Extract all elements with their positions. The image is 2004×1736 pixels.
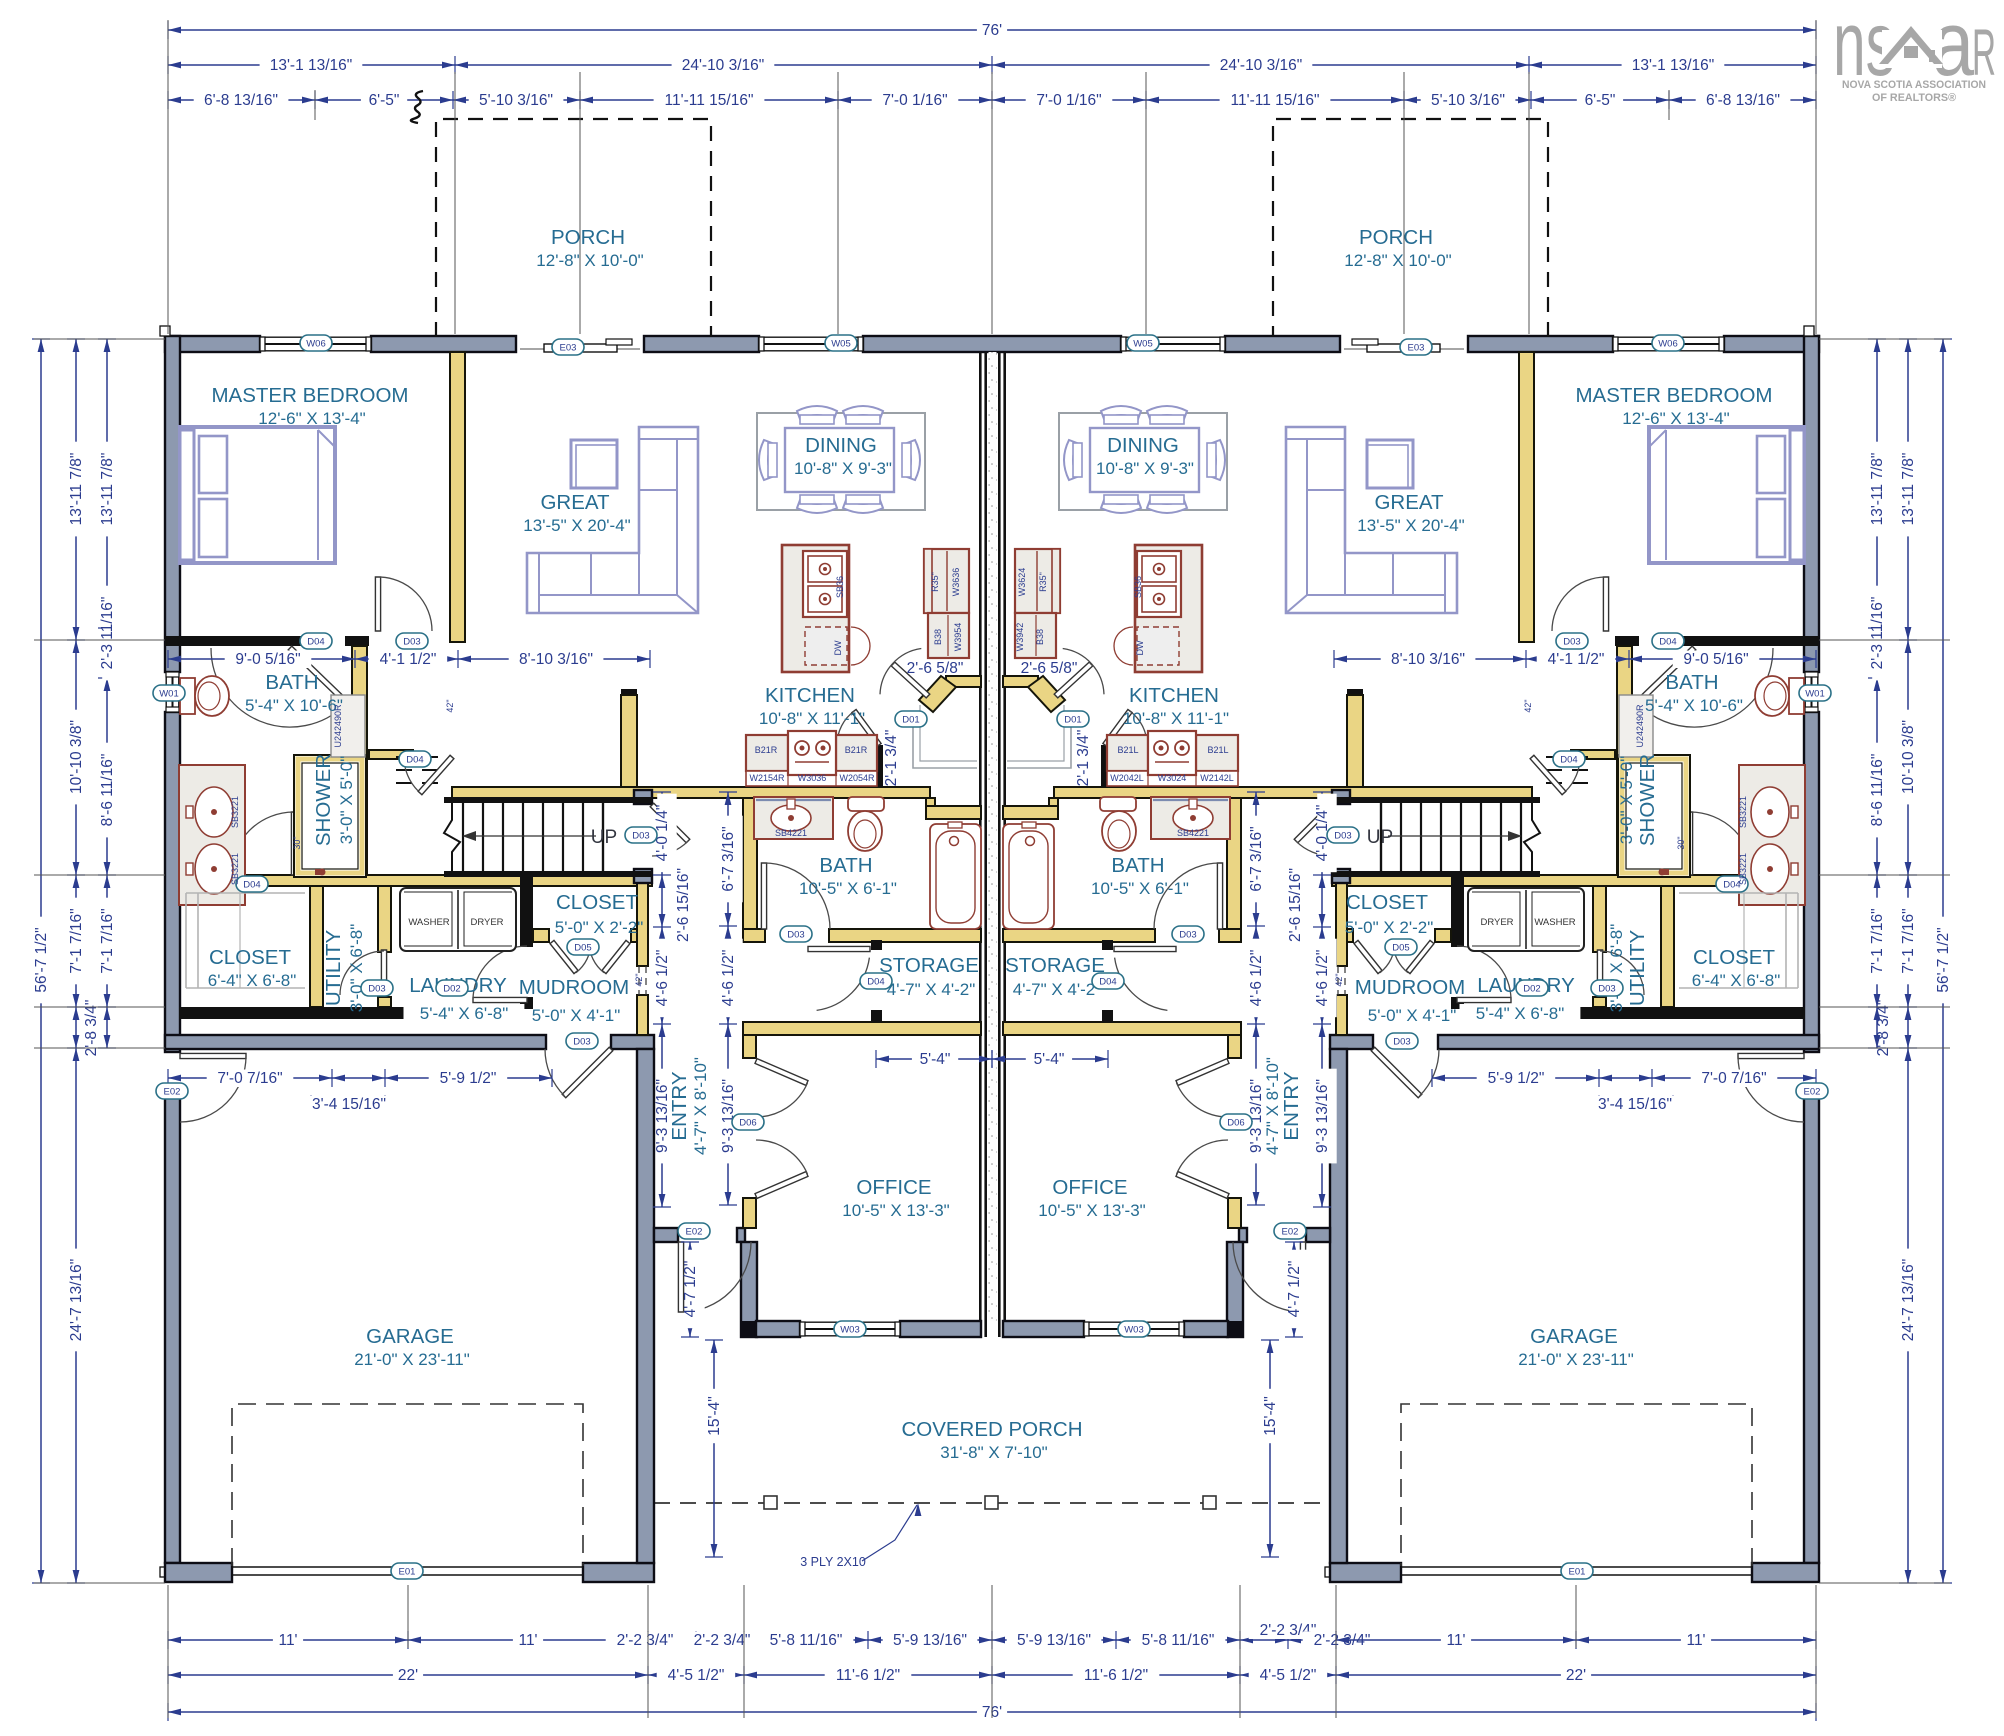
svg-text:W03: W03: [840, 1325, 860, 1336]
svg-text:4'-7" X 8'-10": 4'-7" X 8'-10": [691, 1057, 710, 1155]
svg-text:6'-8 13/16": 6'-8 13/16": [204, 92, 278, 109]
svg-text:SB3221: SB3221: [230, 796, 240, 828]
svg-text:56'-7 1/2": 56'-7 1/2": [1935, 927, 1952, 992]
svg-text:4'-7" X 4'-2": 4'-7" X 4'-2": [887, 980, 976, 999]
svg-text:3 PLY 2X10: 3 PLY 2X10: [800, 1555, 866, 1569]
svg-text:D06: D06: [739, 1118, 756, 1129]
svg-text:D03: D03: [1563, 637, 1580, 648]
svg-text:6'-4" X 6'-8": 6'-4" X 6'-8": [1692, 971, 1781, 990]
svg-text:10'-5" X 6'-1": 10'-5" X 6'-1": [799, 879, 897, 898]
svg-text:12'-8" X 10'-0": 12'-8" X 10'-0": [536, 251, 643, 270]
svg-text:7'-1 7/16": 7'-1 7/16": [1869, 908, 1886, 973]
svg-text:11'-6 1/2": 11'-6 1/2": [1084, 1667, 1148, 1684]
svg-text:15'-4": 15'-4": [706, 1396, 723, 1435]
svg-text:GREAT: GREAT: [540, 491, 610, 514]
svg-text:11'-6 1/2": 11'-6 1/2": [836, 1667, 900, 1684]
svg-text:12'-6" X 13'-4": 12'-6" X 13'-4": [258, 409, 365, 428]
svg-text:W03: W03: [1124, 1325, 1144, 1336]
svg-text:D03: D03: [1598, 984, 1615, 995]
svg-text:DINING: DINING: [1107, 434, 1179, 457]
svg-text:B38: B38: [1035, 629, 1045, 645]
svg-text:OFFICE: OFFICE: [1052, 1176, 1127, 1199]
svg-text:B38: B38: [933, 629, 943, 645]
svg-text:4'-7" X 4'-2": 4'-7" X 4'-2": [1013, 980, 1102, 999]
svg-text:13'-5" X 20'-4": 13'-5" X 20'-4": [523, 516, 630, 535]
svg-text:D01: D01: [1064, 715, 1081, 726]
svg-text:2'-6 15/16": 2'-6 15/16": [1287, 868, 1304, 942]
svg-text:3'-0" X 6'-8": 3'-0" X 6'-8": [347, 924, 366, 1013]
svg-text:4'-6 1/2": 4'-6 1/2": [654, 950, 671, 1007]
svg-text:5'-0" X 2'-2": 5'-0" X 2'-2": [1345, 918, 1434, 937]
svg-text:E01: E01: [399, 1567, 416, 1578]
svg-text:D03: D03: [1334, 831, 1351, 842]
svg-text:SHOWER: SHOWER: [1636, 754, 1659, 846]
svg-text:2'-6 15/16": 2'-6 15/16": [675, 868, 692, 942]
svg-text:R35": R35": [1038, 572, 1048, 592]
svg-text:3'-0" X 5'-0": 3'-0" X 5'-0": [1617, 756, 1636, 845]
svg-text:SB36: SB36: [1133, 576, 1143, 598]
svg-text:CLOSET: CLOSET: [556, 891, 638, 914]
svg-text:5'-0" X 4'-1": 5'-0" X 4'-1": [532, 1006, 621, 1025]
svg-text:56'-7 1/2": 56'-7 1/2": [33, 927, 50, 992]
svg-text:W05: W05: [831, 339, 851, 350]
svg-text:MASTER BEDROOM: MASTER BEDROOM: [1575, 384, 1772, 407]
svg-text:BATH: BATH: [265, 671, 318, 694]
svg-text:SB3221: SB3221: [1738, 853, 1748, 885]
svg-text:W05: W05: [1133, 339, 1153, 350]
svg-text:21'-0" X 23'-11": 21'-0" X 23'-11": [354, 1350, 470, 1369]
svg-text:2'-1 3/4": 2'-1 3/4": [1075, 730, 1092, 787]
svg-text:OF REALTORS®: OF REALTORS®: [1872, 92, 1956, 104]
svg-text:10'-5" X 6'-1": 10'-5" X 6'-1": [1091, 879, 1189, 898]
svg-text:6'-7 3/16": 6'-7 3/16": [1248, 826, 1265, 891]
svg-text:W3636: W3636: [951, 568, 961, 597]
svg-text:OFFICE: OFFICE: [856, 1176, 931, 1199]
svg-text:6'-8 13/16": 6'-8 13/16": [1706, 92, 1780, 109]
svg-text:GARAGE: GARAGE: [1530, 1325, 1618, 1348]
svg-text:6'-5": 6'-5": [369, 92, 400, 109]
svg-text:W3036: W3036: [798, 773, 827, 783]
svg-text:30": 30": [1676, 836, 1686, 849]
svg-text:KITCHEN: KITCHEN: [765, 684, 855, 707]
svg-text:UP: UP: [1367, 827, 1393, 848]
svg-text:9'-0 5/16": 9'-0 5/16": [1683, 651, 1748, 668]
svg-text:21'-0" X 23'-11": 21'-0" X 23'-11": [1518, 1350, 1634, 1369]
svg-text:11': 11': [518, 1632, 537, 1649]
svg-text:13'-11 7/8": 13'-11 7/8": [99, 453, 116, 526]
svg-text:11': 11': [278, 1632, 297, 1649]
svg-text:W3024: W3024: [1158, 773, 1187, 783]
svg-text:D03: D03: [368, 984, 385, 995]
svg-text:5'-9 1/2": 5'-9 1/2": [1488, 1070, 1545, 1087]
svg-text:10'-8" X 11'-1": 10'-8" X 11'-1": [1123, 709, 1229, 728]
svg-text:CLOSET: CLOSET: [1693, 946, 1775, 969]
svg-text:B21L: B21L: [1117, 745, 1138, 755]
svg-text:D04: D04: [1659, 637, 1676, 648]
svg-text:11': 11': [1446, 1632, 1465, 1649]
svg-text:R35": R35": [930, 572, 940, 592]
svg-text:4'-1 1/2": 4'-1 1/2": [1548, 651, 1605, 668]
svg-text:5'-10 3/16": 5'-10 3/16": [1431, 92, 1505, 109]
svg-text:10'-5" X 13'-3": 10'-5" X 13'-3": [842, 1201, 949, 1220]
svg-text:2'-3 11/16": 2'-3 11/16": [1869, 597, 1886, 670]
svg-text:42": 42": [634, 973, 644, 986]
svg-text:E02: E02: [1282, 1227, 1299, 1238]
svg-text:11'-11 15/16": 11'-11 15/16": [665, 92, 754, 109]
svg-text:W2154R: W2154R: [749, 773, 785, 783]
svg-text:BATH: BATH: [1111, 854, 1164, 877]
svg-text:30": 30": [292, 836, 302, 849]
svg-text:BATH: BATH: [819, 854, 872, 877]
svg-text:SB3221: SB3221: [230, 853, 240, 885]
svg-text:10'-5" X 13'-3": 10'-5" X 13'-3": [1038, 1201, 1145, 1220]
svg-text:24'-7 13/16": 24'-7 13/16": [1900, 1259, 1917, 1342]
svg-text:5'-4" X 10'-6": 5'-4" X 10'-6": [1645, 696, 1743, 715]
svg-text:5'-0" X 2'-2": 5'-0" X 2'-2": [555, 918, 644, 937]
svg-text:CLOSET: CLOSET: [209, 946, 291, 969]
svg-text:MUDROOM: MUDROOM: [519, 976, 629, 999]
svg-text:13'-11 7/8": 13'-11 7/8": [1869, 453, 1886, 526]
svg-text:4'-1 1/2": 4'-1 1/2": [380, 651, 437, 668]
svg-text:D03: D03: [1393, 1037, 1410, 1048]
svg-text:W3954: W3954: [953, 623, 963, 652]
svg-text:5'-0" X 4'-1": 5'-0" X 4'-1": [1368, 1006, 1457, 1025]
svg-text:SB3221: SB3221: [1738, 796, 1748, 828]
svg-text:W2142L: W2142L: [1200, 773, 1234, 783]
svg-text:NOVA SCOTIA ASSOCIATION: NOVA SCOTIA ASSOCIATION: [1842, 79, 1986, 91]
svg-text:E02: E02: [1804, 1087, 1821, 1098]
svg-text:UTILITY: UTILITY: [1626, 930, 1649, 1007]
svg-text:2'-3 11/16": 2'-3 11/16": [99, 597, 116, 670]
svg-text:D04: D04: [1560, 755, 1577, 766]
svg-text:DW: DW: [833, 640, 843, 655]
svg-text:4'-5 1/2": 4'-5 1/2": [1260, 1667, 1317, 1684]
svg-text:SB4221: SB4221: [775, 828, 807, 838]
svg-text:E03: E03: [1408, 343, 1425, 354]
svg-text:DINING: DINING: [805, 434, 877, 457]
svg-text:D02: D02: [1523, 984, 1540, 995]
svg-text:7'-1 7/16": 7'-1 7/16": [68, 908, 85, 973]
svg-text:15'-4": 15'-4": [1262, 1396, 1279, 1435]
svg-text:STORAGE: STORAGE: [879, 954, 979, 977]
svg-text:B21R: B21R: [755, 745, 778, 755]
svg-text:MUDROOM: MUDROOM: [1355, 976, 1465, 999]
svg-text:D02: D02: [443, 984, 460, 995]
svg-text:3'-4 15/16": 3'-4 15/16": [1598, 1096, 1672, 1113]
svg-text:E02: E02: [686, 1227, 703, 1238]
svg-text:UTILITY: UTILITY: [322, 930, 345, 1007]
svg-text:4'-7" X 8'-10": 4'-7" X 8'-10": [1263, 1057, 1282, 1155]
svg-text:7'-1 7/16": 7'-1 7/16": [99, 908, 116, 973]
svg-text:12'-8" X 10'-0": 12'-8" X 10'-0": [1344, 251, 1451, 270]
svg-text:U242490R: U242490R: [333, 704, 343, 748]
svg-text:W3624: W3624: [1017, 568, 1027, 597]
svg-text:11'-11 15/16": 11'-11 15/16": [1231, 92, 1320, 109]
svg-text:10'-8" X 9'-3": 10'-8" X 9'-3": [1096, 459, 1194, 478]
svg-text:D04: D04: [307, 637, 324, 648]
svg-text:4'-6 1/2": 4'-6 1/2": [1248, 950, 1265, 1007]
svg-text:7'-1 7/16": 7'-1 7/16": [1900, 908, 1917, 973]
svg-text:7'-0 7/16": 7'-0 7/16": [1701, 1070, 1766, 1087]
svg-text:5'-9 1/2": 5'-9 1/2": [440, 1070, 497, 1087]
svg-text:42": 42": [1523, 699, 1533, 712]
svg-text:5'-9 13/16": 5'-9 13/16": [1017, 1632, 1091, 1649]
svg-text:DW: DW: [1135, 640, 1145, 655]
svg-text:5'-4": 5'-4": [920, 1051, 951, 1068]
svg-text:7'-0 1/16": 7'-0 1/16": [1036, 92, 1101, 109]
svg-text:D03: D03: [573, 1037, 590, 1048]
svg-text:10'-10 3/8": 10'-10 3/8": [68, 720, 85, 794]
svg-text:6'-4" X 6'-8": 6'-4" X 6'-8": [208, 971, 297, 990]
svg-text:R: R: [1972, 15, 1996, 89]
svg-text:31'-8" X 7'-10": 31'-8" X 7'-10": [940, 1443, 1047, 1462]
svg-text:W2054R: W2054R: [839, 773, 875, 783]
svg-text:42": 42": [445, 699, 455, 712]
svg-text:ENTRY: ENTRY: [668, 1071, 691, 1140]
svg-text:U242490R: U242490R: [1635, 704, 1645, 748]
svg-text:D06: D06: [1227, 1118, 1244, 1129]
svg-text:WASHER: WASHER: [1534, 917, 1575, 928]
svg-text:B21R: B21R: [845, 745, 868, 755]
svg-text:ENTRY: ENTRY: [1280, 1071, 1303, 1140]
svg-text:13'-5" X 20'-4": 13'-5" X 20'-4": [1357, 516, 1464, 535]
svg-text:22': 22': [1566, 1667, 1586, 1684]
svg-text:9'-3 13/16": 9'-3 13/16": [1314, 1079, 1331, 1153]
svg-text:10'-10 3/8": 10'-10 3/8": [1900, 720, 1917, 794]
svg-text:2'-6 5/8": 2'-6 5/8": [1021, 660, 1078, 677]
svg-text:GREAT: GREAT: [1374, 491, 1444, 514]
svg-text:W06: W06: [306, 339, 326, 350]
svg-text:7'-0 1/16": 7'-0 1/16": [882, 92, 947, 109]
svg-text:D04: D04: [867, 977, 884, 988]
svg-text:76': 76': [982, 22, 1002, 39]
svg-text:11': 11': [1686, 1632, 1705, 1649]
svg-text:24'-7 13/16": 24'-7 13/16": [68, 1259, 85, 1342]
svg-text:D04: D04: [406, 755, 423, 766]
svg-text:PORCH: PORCH: [1359, 226, 1433, 249]
svg-text:SB36: SB36: [835, 576, 845, 598]
svg-text:13'-1 13/16": 13'-1 13/16": [1632, 57, 1715, 74]
svg-text:DRYER: DRYER: [1480, 917, 1513, 928]
svg-text:W3942: W3942: [1015, 623, 1025, 652]
svg-text:W06: W06: [1658, 339, 1678, 350]
svg-text:SB4221: SB4221: [1177, 828, 1209, 838]
svg-text:E02: E02: [164, 1087, 181, 1098]
svg-text:13'-11 7/8": 13'-11 7/8": [1900, 453, 1917, 526]
svg-text:BATH: BATH: [1665, 671, 1718, 694]
svg-text:5'-4" X 6'-8": 5'-4" X 6'-8": [1476, 1004, 1565, 1023]
svg-text:D03: D03: [632, 831, 649, 842]
svg-text:7'-0 7/16": 7'-0 7/16": [217, 1070, 282, 1087]
svg-text:5'-4": 5'-4": [1034, 1051, 1065, 1068]
svg-text:2'-1 3/4": 2'-1 3/4": [883, 730, 900, 787]
svg-text:2'-6 5/8": 2'-6 5/8": [907, 660, 964, 677]
svg-text:UP: UP: [591, 827, 617, 848]
svg-text:D03: D03: [787, 930, 804, 941]
svg-text:5'-8 11/16": 5'-8 11/16": [1142, 1632, 1215, 1649]
svg-text:GARAGE: GARAGE: [366, 1325, 454, 1348]
svg-text:STORAGE: STORAGE: [1005, 954, 1105, 977]
svg-text:8'-6 11/16": 8'-6 11/16": [1869, 754, 1886, 827]
svg-text:6'-7 3/16": 6'-7 3/16": [720, 826, 737, 891]
svg-text:8'-6 11/16": 8'-6 11/16": [99, 754, 116, 827]
svg-text:5'-4" X 10'-6": 5'-4" X 10'-6": [245, 696, 343, 715]
svg-text:24'-10 3/16": 24'-10 3/16": [1220, 57, 1303, 74]
svg-text:SHOWER: SHOWER: [312, 754, 335, 846]
svg-text:8'-10 3/16": 8'-10 3/16": [1391, 651, 1465, 668]
svg-text:4'-7 1/2": 4'-7 1/2": [682, 1261, 699, 1318]
svg-text:3'-0" X 5'-0": 3'-0" X 5'-0": [337, 756, 356, 845]
svg-text:D03: D03: [403, 637, 420, 648]
svg-text:5'-4" X 6'-8": 5'-4" X 6'-8": [420, 1004, 509, 1023]
svg-text:3'-4 15/16": 3'-4 15/16": [312, 1096, 386, 1113]
svg-text:4'-6 1/2": 4'-6 1/2": [720, 950, 737, 1007]
svg-text:B21L: B21L: [1207, 745, 1228, 755]
svg-text:CLOSET: CLOSET: [1346, 891, 1428, 914]
svg-text:W01: W01: [159, 689, 179, 700]
svg-text:24'-10 3/16": 24'-10 3/16": [682, 57, 765, 74]
svg-text:D05: D05: [574, 943, 591, 954]
svg-text:10'-8" X 9'-3": 10'-8" X 9'-3": [794, 459, 892, 478]
svg-text:13'-11 7/8": 13'-11 7/8": [68, 453, 85, 526]
svg-text:5'-10 3/16": 5'-10 3/16": [479, 92, 553, 109]
svg-text:9'-0 5/16": 9'-0 5/16": [235, 651, 300, 668]
svg-text:COVERED PORCH: COVERED PORCH: [901, 1418, 1082, 1441]
svg-text:D03: D03: [1179, 930, 1196, 941]
svg-text:E03: E03: [560, 343, 577, 354]
svg-text:13'-1 13/16": 13'-1 13/16": [270, 57, 353, 74]
svg-text:W01: W01: [1805, 689, 1825, 700]
svg-text:MASTER BEDROOM: MASTER BEDROOM: [211, 384, 408, 407]
svg-text:DRYER: DRYER: [470, 917, 503, 928]
svg-text:D01: D01: [902, 715, 919, 726]
svg-text:D04: D04: [243, 880, 260, 891]
svg-text:5'-9 13/16": 5'-9 13/16": [893, 1632, 967, 1649]
svg-text:5'-8 11/16": 5'-8 11/16": [770, 1632, 843, 1649]
svg-text:4'-7 1/2": 4'-7 1/2": [1286, 1261, 1303, 1318]
svg-text:W2042L: W2042L: [1110, 773, 1144, 783]
svg-text:WASHER: WASHER: [408, 917, 449, 928]
svg-text:3'-0" X 6'-8": 3'-0" X 6'-8": [1607, 924, 1626, 1013]
svg-text:6'-5": 6'-5": [1585, 92, 1616, 109]
svg-text:4'-5 1/2": 4'-5 1/2": [668, 1667, 725, 1684]
svg-text:12'-6" X 13'-4": 12'-6" X 13'-4": [1622, 409, 1729, 428]
svg-text:2'-2 3/4": 2'-2 3/4": [617, 1632, 674, 1649]
svg-text:42": 42": [1334, 973, 1344, 986]
svg-text:2'-2 3/4": 2'-2 3/4": [694, 1632, 751, 1649]
svg-text:D04: D04: [1099, 977, 1116, 988]
svg-text:PORCH: PORCH: [551, 226, 625, 249]
svg-text:8'-10 3/16": 8'-10 3/16": [519, 651, 593, 668]
svg-text:D05: D05: [1392, 943, 1409, 954]
svg-text:10'-8" X 11'-1": 10'-8" X 11'-1": [759, 709, 865, 728]
svg-text:4'-6 1/2": 4'-6 1/2": [1314, 950, 1331, 1007]
svg-text:E01: E01: [1569, 1567, 1586, 1578]
svg-text:KITCHEN: KITCHEN: [1129, 684, 1219, 707]
svg-text:22': 22': [398, 1667, 418, 1684]
